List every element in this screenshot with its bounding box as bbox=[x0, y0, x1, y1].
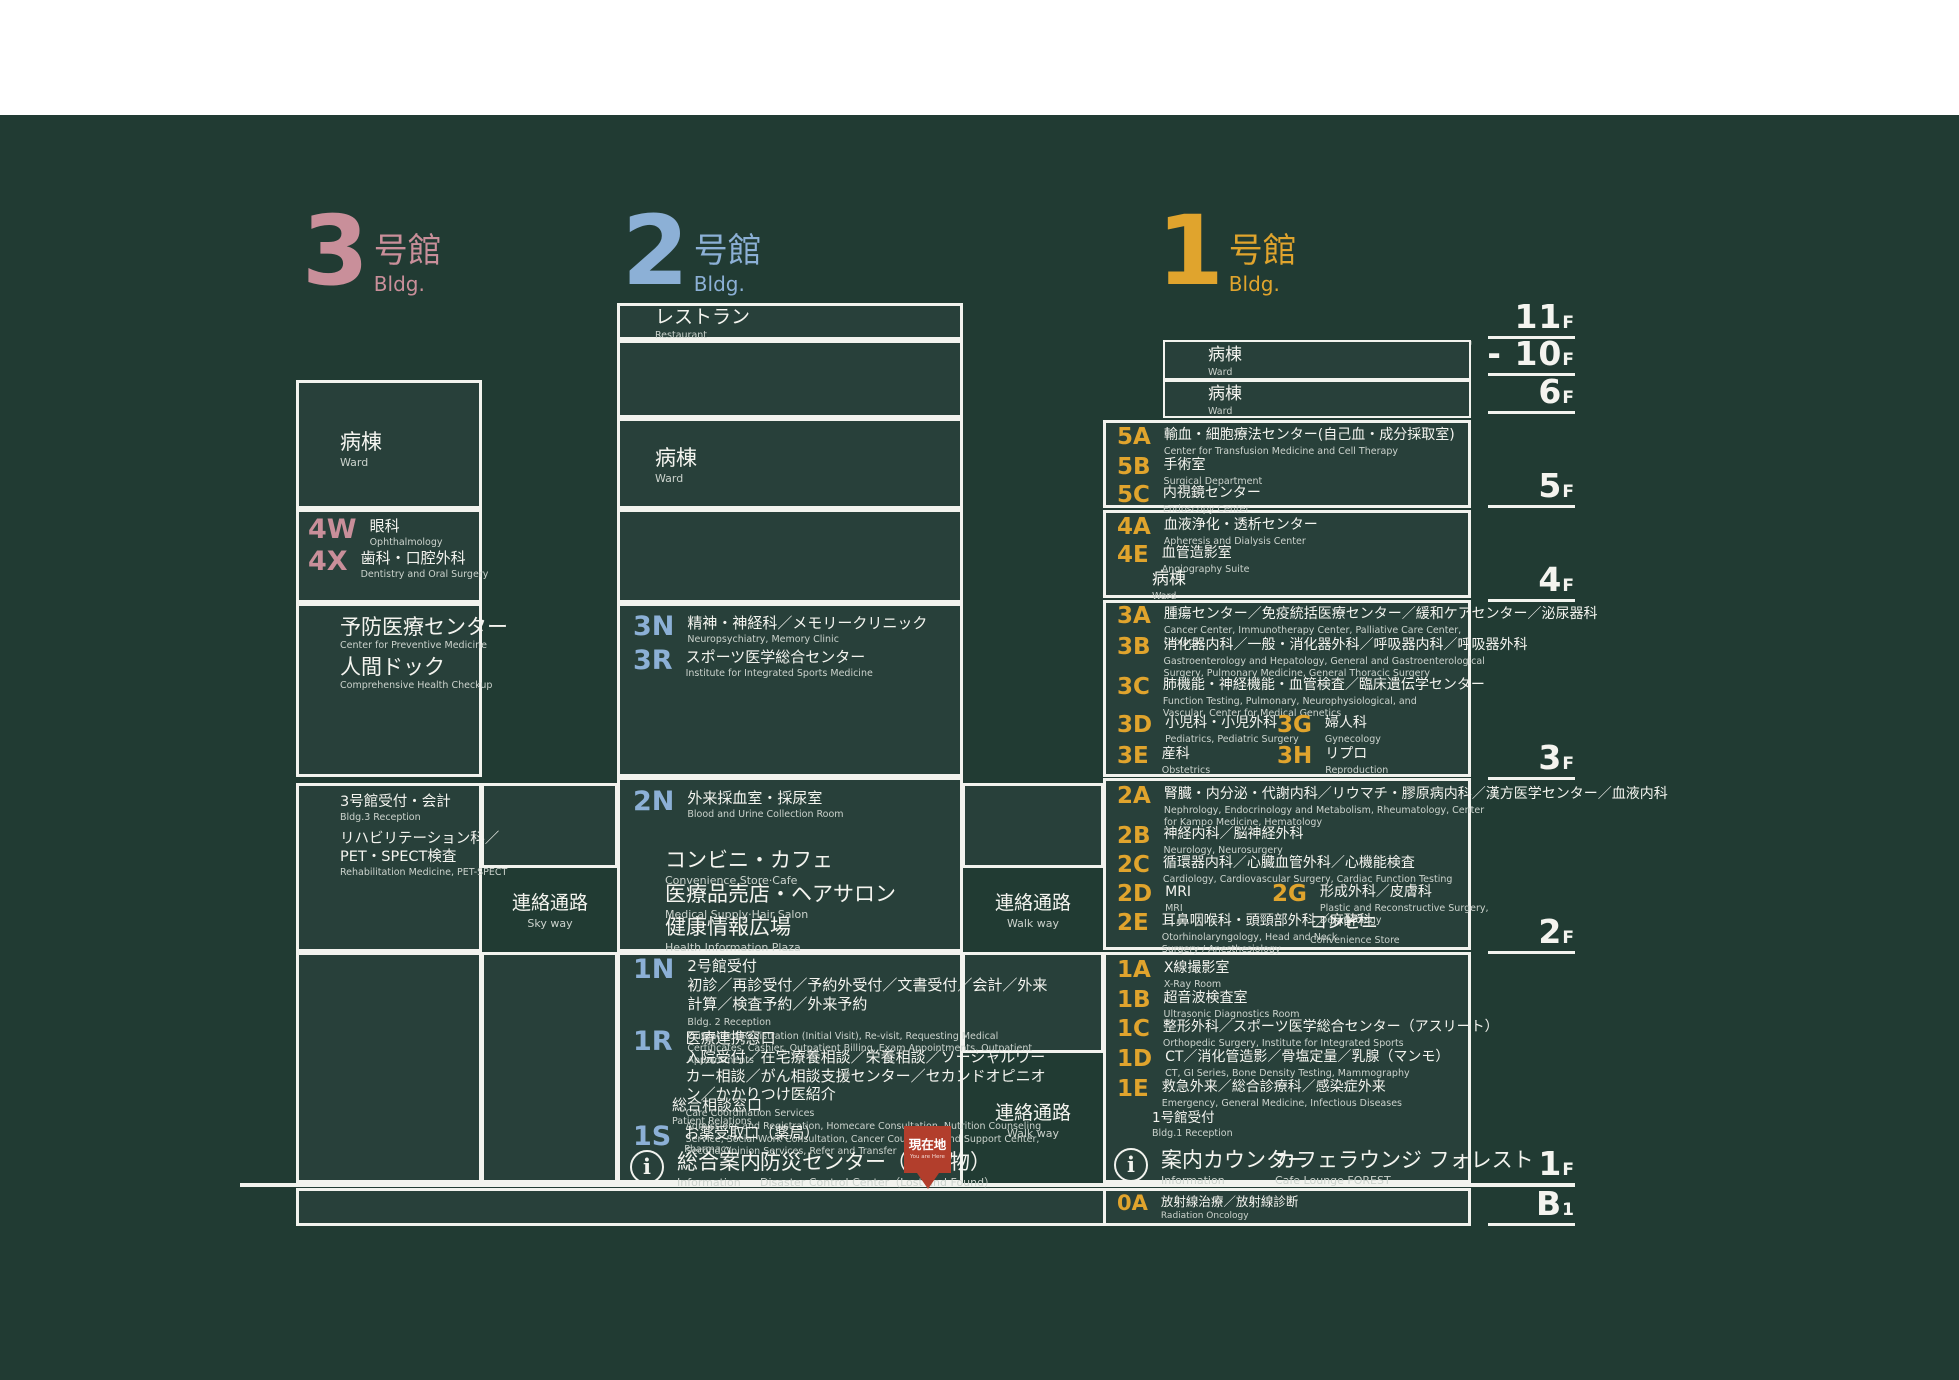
room-5a: 5A 輸血・細胞療法センター(自己血・成分採取室)Center for Tran… bbox=[1117, 427, 1455, 458]
room-3r: 3R スポーツ医学総合センターInstitute for Integrated … bbox=[633, 648, 873, 680]
rehabilitation-label: リハビリテーション科／ PET・SPECT検査 Rehabilitation M… bbox=[340, 830, 507, 879]
walkway-upper-label: 連絡通路Walk way bbox=[962, 893, 1104, 930]
bldg2-bldg-label: Bldg. bbox=[694, 274, 762, 294]
room-1e: 1E 救急外来／総合診療科／感染症外来Emergency, General Me… bbox=[1117, 1079, 1402, 1110]
room-3e: 3E 産科Obstetrics bbox=[1117, 746, 1210, 777]
bldg1-ward710-label: 病棟Ward bbox=[1208, 346, 1242, 378]
floor-line-3f bbox=[1488, 777, 1575, 780]
bldg1-ward4-label: 病棟Ward bbox=[1152, 570, 1186, 602]
you-are-here-pointer bbox=[917, 1173, 939, 1189]
room-2n: 2N 外来採血室・採尿室Blood and Urine Collection R… bbox=[633, 789, 844, 821]
disaster-center-label: 防災センター（落し物）Disaster Control Center（Lost … bbox=[760, 1150, 995, 1190]
skyway-lower-box bbox=[481, 952, 618, 1183]
walkway-upper-box bbox=[962, 783, 1104, 868]
room-0a: 0A 放射線治療／放射線診断Radiation Oncology bbox=[1117, 1194, 1298, 1222]
room-3n: 3N 精神・神経科／メモリークリニックNeuropsychiatry, Memo… bbox=[633, 614, 927, 646]
floor-line-5f bbox=[1488, 505, 1575, 508]
room-1d: 1D CT／消化管造影／骨塩定量／乳腺（マンモ）CT, GI Series, B… bbox=[1117, 1049, 1449, 1080]
room-4x: 4X 歯科・口腔外科Dentistry and Oral Surgery bbox=[308, 549, 488, 581]
bldg2-ward-label: 病棟Ward bbox=[655, 446, 697, 486]
floor-guide-map: 3 号館 Bldg. 2 号館 Bldg. 1 号館 Bldg. 11F 7 -… bbox=[0, 0, 1959, 1380]
health-checkup-label: 人間ドックComprehensive Health Checkup bbox=[340, 655, 492, 692]
basement-strip-divider bbox=[1103, 1188, 1106, 1226]
bldg1-header: 1 号館 Bldg. bbox=[1157, 212, 1297, 294]
floor-line-6f bbox=[1488, 411, 1575, 414]
bldg3-ward-label: 病棟Ward bbox=[340, 430, 382, 470]
bldg2-info-row: i 総合案内Information bbox=[630, 1150, 761, 1190]
bldg3-kan: 号館 bbox=[374, 234, 442, 268]
bldg2-number: 2 bbox=[622, 212, 687, 291]
room-5c: 5C 内視鏡センターEndoscopy Center bbox=[1117, 485, 1261, 516]
info-icon: i bbox=[630, 1150, 664, 1184]
floor-label-11f: 11F bbox=[1355, 300, 1575, 333]
bldg3-bldg-label: Bldg. bbox=[374, 274, 442, 294]
floor-line-4f bbox=[1488, 599, 1575, 602]
room-3g: 3G 婦人科Gynecology bbox=[1277, 715, 1381, 746]
bldg2-kan: 号館 bbox=[694, 234, 762, 268]
bldg3-header: 3 号館 Bldg. bbox=[302, 212, 442, 294]
bldg1-reception-label: 1号館受付Bldg.1 Reception bbox=[1152, 1110, 1233, 1140]
preventive-medicine-label: 予防医療センターCenter for Preventive Medicine bbox=[340, 615, 508, 652]
bldg3-ward-box bbox=[296, 380, 482, 509]
room-2a: 2A 腎臓・内分泌・代謝内科／リウマチ・膠原病内科／漢方医学センター／血液内科N… bbox=[1117, 786, 1668, 829]
info-icon: i bbox=[1114, 1148, 1148, 1182]
bldg1-number: 1 bbox=[1157, 212, 1222, 291]
bldg1-convenience-label: コンビニConvenience Store bbox=[1310, 914, 1400, 946]
bldg2-upper-empty-box bbox=[617, 340, 963, 418]
room-3b: 3B 消化器内科／一般・消化器外科／呼吸器内科／呼吸器外科Gastroenter… bbox=[1117, 637, 1528, 680]
floor-line-b1 bbox=[1488, 1223, 1575, 1226]
room-3d: 3D 小児科・小児外科Pediatrics, Pediatric Surgery bbox=[1117, 715, 1299, 746]
bldg1-bldg-label: Bldg. bbox=[1229, 274, 1297, 294]
patient-relations-label: 総合相談窓口Patient Relations bbox=[672, 1096, 762, 1128]
bldg3-number: 3 bbox=[302, 212, 367, 291]
walkway-lower-label: 連絡通路Walk way bbox=[962, 1103, 1104, 1140]
restaurant-label: レストランRestaurant bbox=[655, 307, 750, 342]
you-are-here-marker: 現在地 You are Here bbox=[904, 1126, 951, 1173]
bldg2-header: 2 号館 Bldg. bbox=[622, 212, 762, 294]
room-1c: 1C 整形外科／スポーツ医学総合センター（アスリート）Orthopedic Su… bbox=[1117, 1019, 1499, 1050]
health-plaza-label: 健康情報広場Health Information Plaza bbox=[665, 915, 801, 955]
room-4w: 4W 眼科Ophthalmology bbox=[308, 517, 442, 549]
bldg2-4f-box bbox=[617, 509, 963, 603]
skyway-label: 連絡通路Sky way bbox=[482, 893, 618, 930]
general-information-label: 総合案内Information bbox=[677, 1150, 761, 1190]
floor-line-2f bbox=[1488, 951, 1575, 954]
bldg3-reception-label: 3号館受付・会計Bldg.3 Reception bbox=[340, 793, 451, 824]
room-3h: 3H リプロReproduction bbox=[1277, 746, 1388, 777]
bldg3-1f-box bbox=[296, 952, 482, 1183]
cafe-lounge-label: カフェラウンジ フォレストCafe Lounge FOREST bbox=[1275, 1148, 1534, 1188]
bldg1-ward6-label: 病棟Ward bbox=[1208, 385, 1242, 417]
bldg1-kan: 号館 bbox=[1229, 234, 1297, 268]
